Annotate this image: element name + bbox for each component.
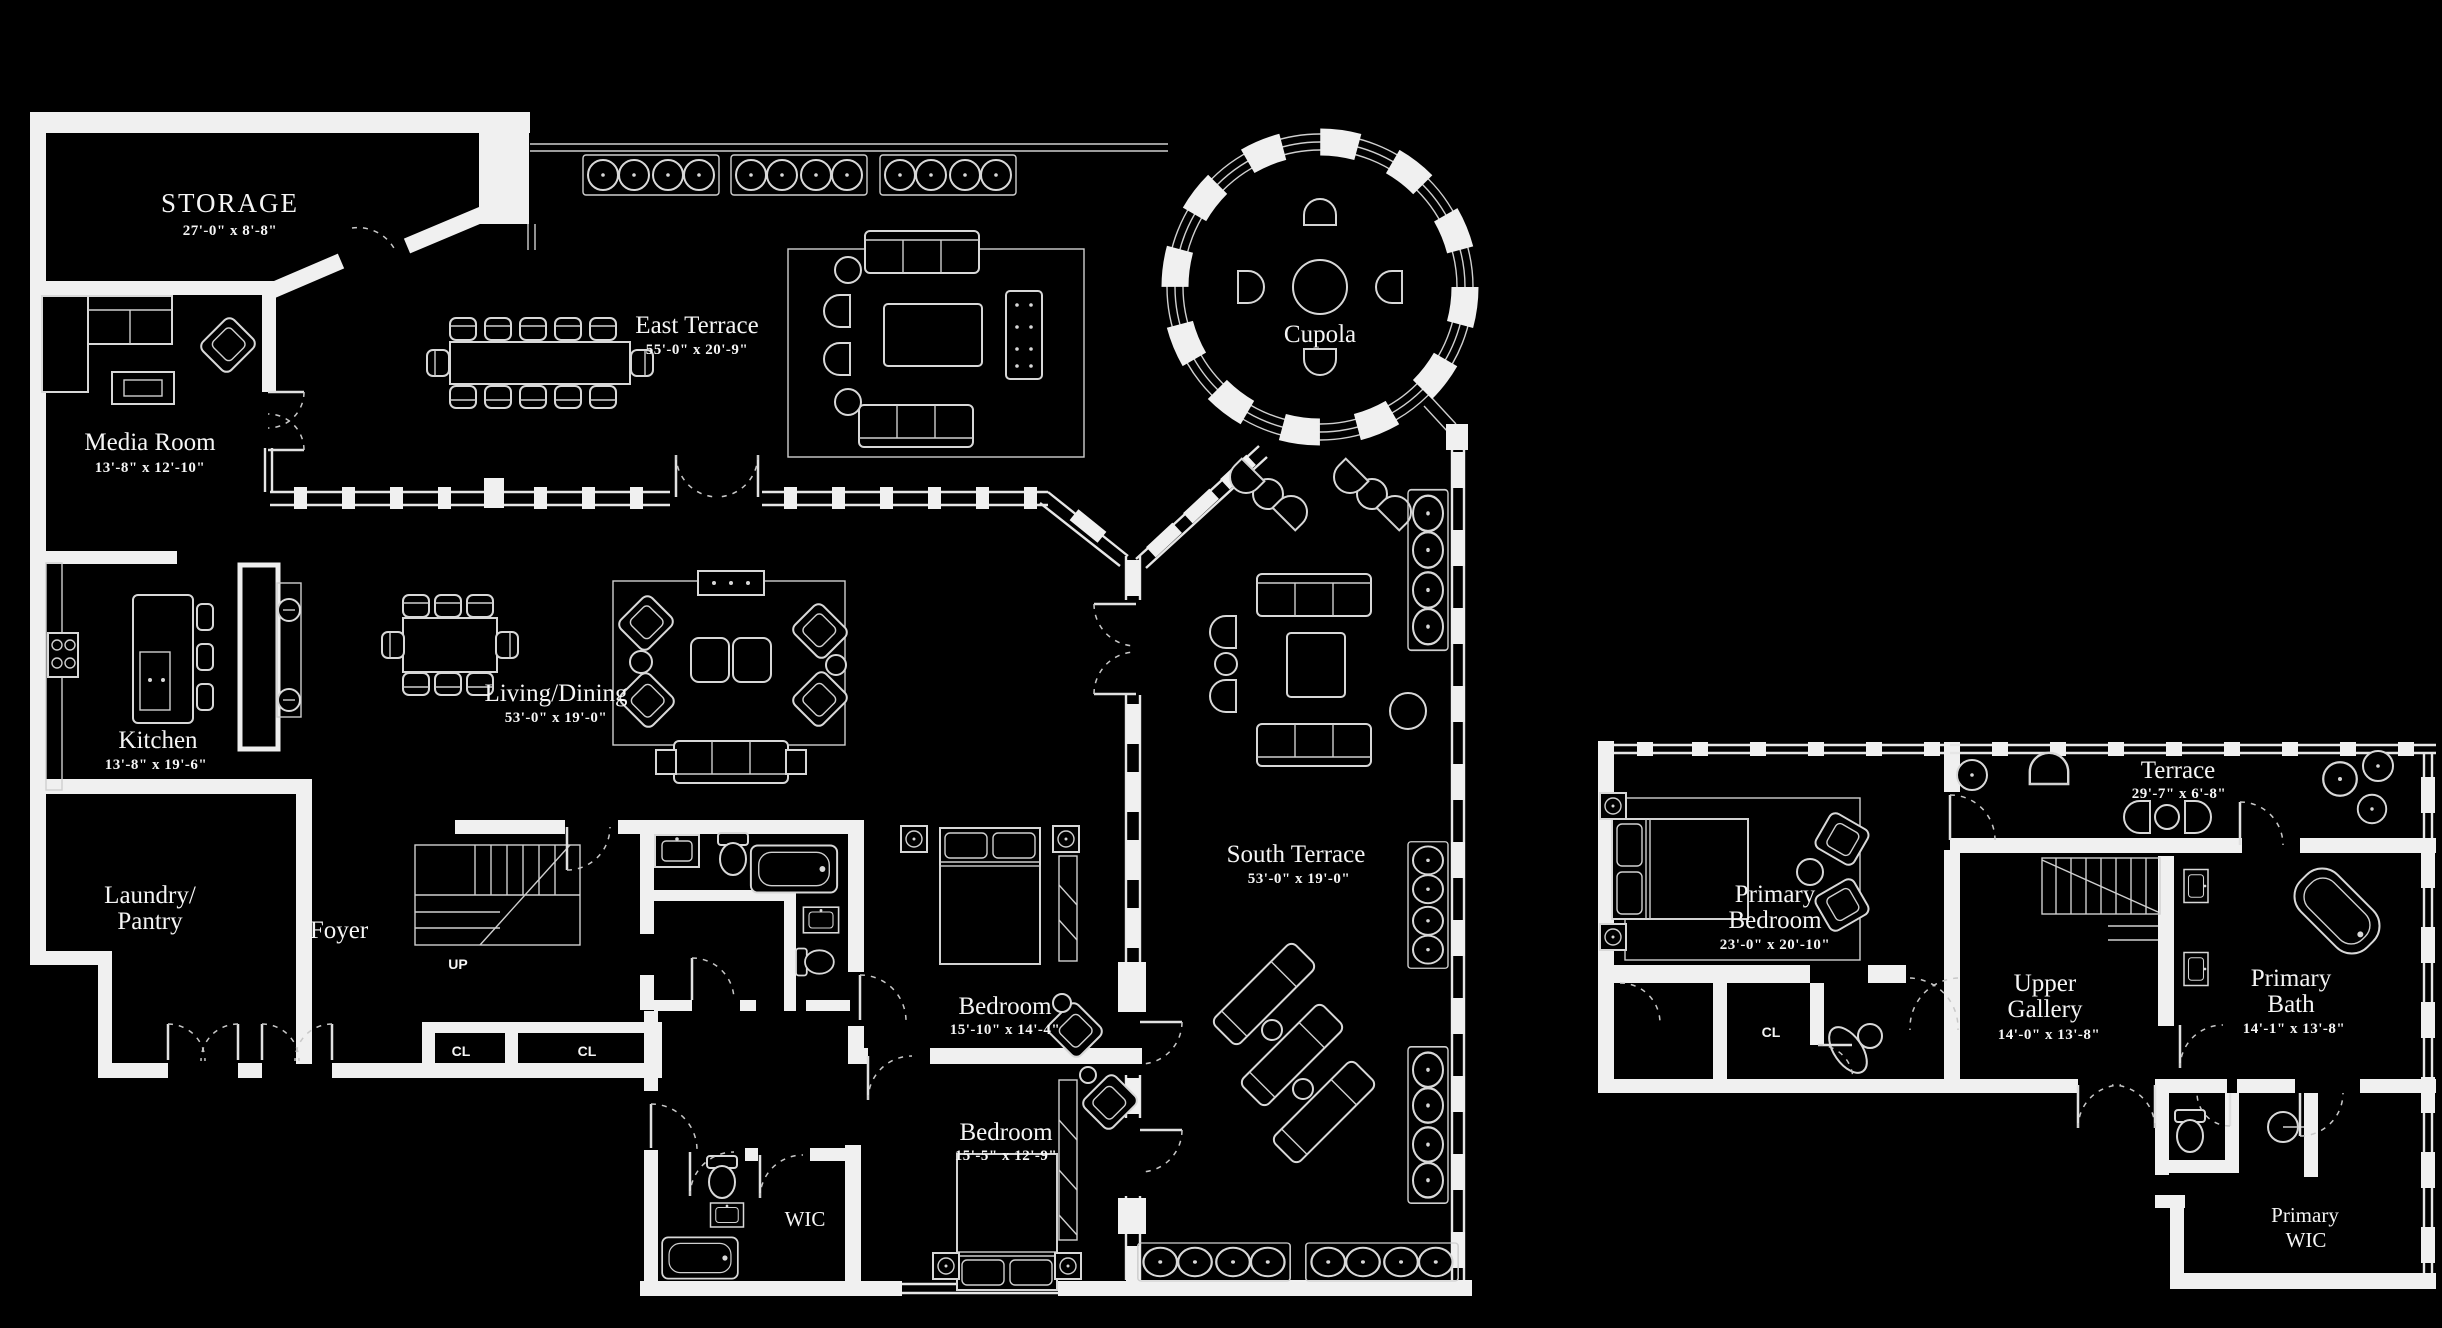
south-terrace-dims: 53'-0" x 19'-0"	[1248, 871, 1350, 887]
bedroom1-dims: 15'-10" x 14'-4"	[950, 1022, 1060, 1038]
media-room-label: Media Room	[84, 429, 216, 456]
closet-label: CL	[1762, 1024, 1781, 1040]
cupola-chair-south	[1304, 349, 1336, 375]
side-table	[786, 750, 806, 774]
outdoor-coffee-table	[884, 304, 982, 366]
laundry-label-1: Laundry/	[104, 882, 196, 909]
upper-gallery-dims: 14'-0" x 13'-8"	[1998, 1027, 2100, 1043]
side-table	[1293, 1079, 1313, 1099]
stool	[197, 604, 213, 630]
stool	[197, 644, 213, 670]
living-dining-dims: 53'-0" x 19'-0"	[505, 710, 607, 726]
side-table	[1215, 653, 1237, 675]
bedroom2-label: Bedroom	[959, 1119, 1053, 1146]
bed	[940, 828, 1040, 964]
east-terrace-label: East Terrace	[635, 312, 758, 339]
cupola-chair-east	[1376, 271, 1402, 303]
storage-dims: 27'-0" x 8'-8"	[183, 223, 277, 239]
storage-label: STORAGE	[161, 188, 299, 218]
media-room-dims: 13'-8" x 12'-10"	[95, 460, 205, 476]
outdoor-dining-table	[450, 342, 630, 384]
primary-bath-dims: 14'-1" x 13'-8"	[2243, 1021, 2345, 1037]
foyer-label: Foyer	[310, 917, 369, 944]
kitchen-island	[133, 595, 193, 723]
bistro-table	[2155, 805, 2179, 829]
dining-table	[403, 618, 497, 672]
bedroom1-label: Bedroom	[958, 993, 1052, 1020]
closet1-label: CL	[452, 1043, 471, 1059]
planter	[835, 257, 861, 283]
ottoman	[733, 638, 771, 682]
laundry-label-2: Pantry	[117, 908, 183, 935]
bedroom2-dims: 15'-5" x 12'-9"	[955, 1148, 1057, 1164]
kitchen-cabinet	[240, 565, 278, 749]
wic-label: WIC	[785, 1207, 826, 1231]
living-dining-label: Living/Dining	[484, 680, 628, 707]
upper-gallery-label-2: Gallery	[2008, 996, 2083, 1023]
primary-bath-label-2: Bath	[2267, 991, 2315, 1018]
round-table	[1390, 693, 1426, 729]
primary-wic-label-1: Primary	[2271, 1203, 2339, 1227]
primary-wic-label-2: WIC	[2286, 1228, 2327, 1252]
side-table	[826, 655, 846, 675]
cupola-table	[1293, 260, 1347, 314]
east-terrace-dims: 55'-0" x 20'-9"	[646, 342, 748, 358]
planter	[835, 389, 861, 415]
outdoor-bench	[1006, 291, 1042, 379]
terrace-label: Terrace	[2141, 757, 2216, 784]
cupola-chair-north	[1304, 199, 1336, 225]
side-table	[630, 651, 652, 673]
south-terrace-label: South Terrace	[1227, 841, 1366, 868]
side-table	[656, 750, 676, 774]
floor-plan-canvas: STORAGE 27'-0" x 8'-8" Media Room 13'-8"…	[0, 0, 2442, 1328]
up-label: UP	[448, 956, 467, 972]
media-tv-console	[112, 372, 174, 404]
primary-bedroom-dims: 23'-0" x 20'-10"	[1720, 937, 1830, 953]
side-table	[1858, 1024, 1882, 1048]
primary-bedroom-label-1: Primary	[1735, 881, 1816, 908]
side-table	[1080, 1067, 1096, 1083]
bed	[957, 1154, 1057, 1290]
primary-bedroom-label-2: Bedroom	[1728, 907, 1822, 934]
primary-bath-label-1: Primary	[2251, 965, 2332, 992]
cupola-label: Cupola	[1284, 321, 1356, 348]
kitchen-label: Kitchen	[118, 727, 198, 754]
terrace-dims: 29'-7" x 6'-8"	[2132, 786, 2226, 802]
floor-plan-page: STORAGE 27'-0" x 8'-8" Media Room 13'-8"…	[0, 0, 2442, 1328]
ottoman	[691, 638, 729, 682]
primary-bed	[1612, 819, 1748, 919]
living-sofa	[674, 741, 788, 783]
cupola	[1167, 134, 1473, 440]
side-table	[1262, 1020, 1282, 1040]
cooktop	[48, 633, 78, 677]
upper-gallery-label-1: Upper	[2014, 970, 2077, 997]
cupola-chair-west	[1238, 271, 1264, 303]
kitchen-dims: 13'-8" x 19'-6"	[105, 757, 207, 773]
side-table	[1053, 994, 1071, 1012]
stool	[197, 684, 213, 710]
closet2-label: CL	[578, 1043, 597, 1059]
outdoor-coffee-table	[1287, 633, 1345, 697]
